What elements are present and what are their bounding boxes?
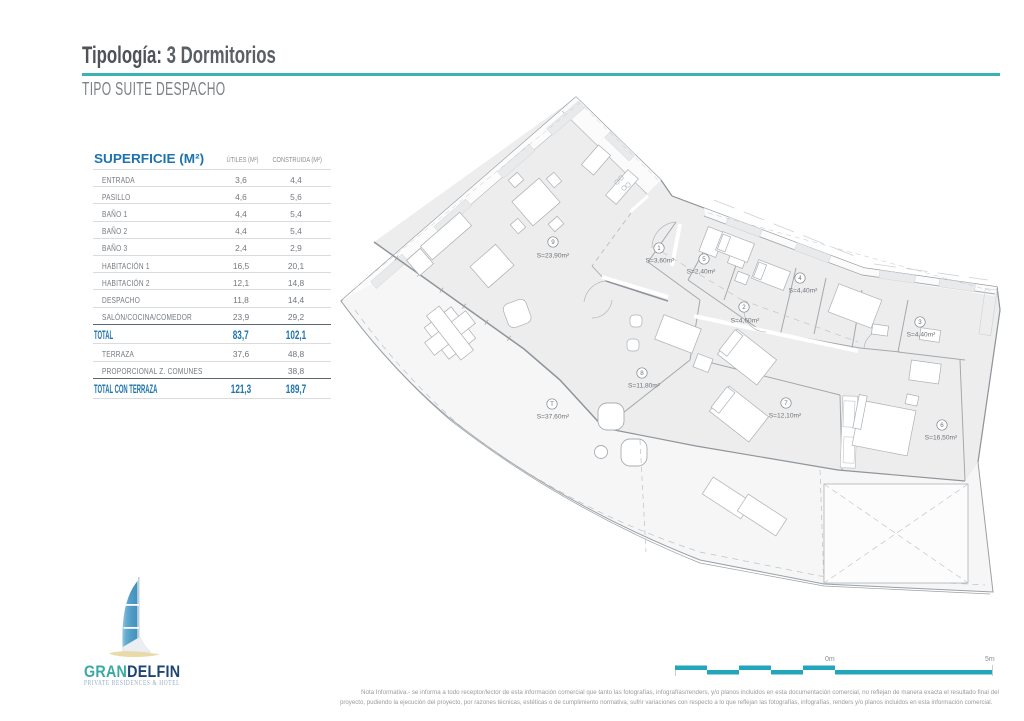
svg-text:S=3,60m²: S=3,60m² [646, 258, 676, 265]
svg-text:5m: 5m [985, 656, 995, 663]
svg-text:0m: 0m [825, 656, 835, 663]
svg-text:1: 1 [657, 245, 661, 252]
svg-text:5: 5 [702, 256, 706, 263]
svg-text:6: 6 [940, 422, 944, 429]
svg-text:S=37,60m²: S=37,60m² [537, 414, 570, 421]
svg-text:8: 8 [640, 370, 644, 377]
svg-text:4: 4 [798, 275, 802, 282]
svg-text:S=4,40m²: S=4,40m² [789, 288, 819, 295]
svg-text:S=2,40m²: S=2,40m² [687, 269, 717, 276]
svg-text:S=4,60m²: S=4,60m² [731, 318, 761, 325]
svg-text:S=12,10m²: S=12,10m² [769, 413, 802, 420]
svg-text:3: 3 [918, 319, 922, 326]
svg-text:T: T [550, 401, 554, 408]
svg-text:S=4,40m²: S=4,40m² [907, 332, 937, 339]
svg-text:S=16,50m²: S=16,50m² [925, 435, 958, 442]
svg-text:9: 9 [551, 239, 555, 246]
svg-text:7: 7 [784, 400, 788, 407]
svg-text:2: 2 [742, 304, 746, 311]
svg-text:S=23,90m²: S=23,90m² [537, 253, 570, 260]
svg-text:S=11,80m²: S=11,80m² [628, 383, 661, 390]
